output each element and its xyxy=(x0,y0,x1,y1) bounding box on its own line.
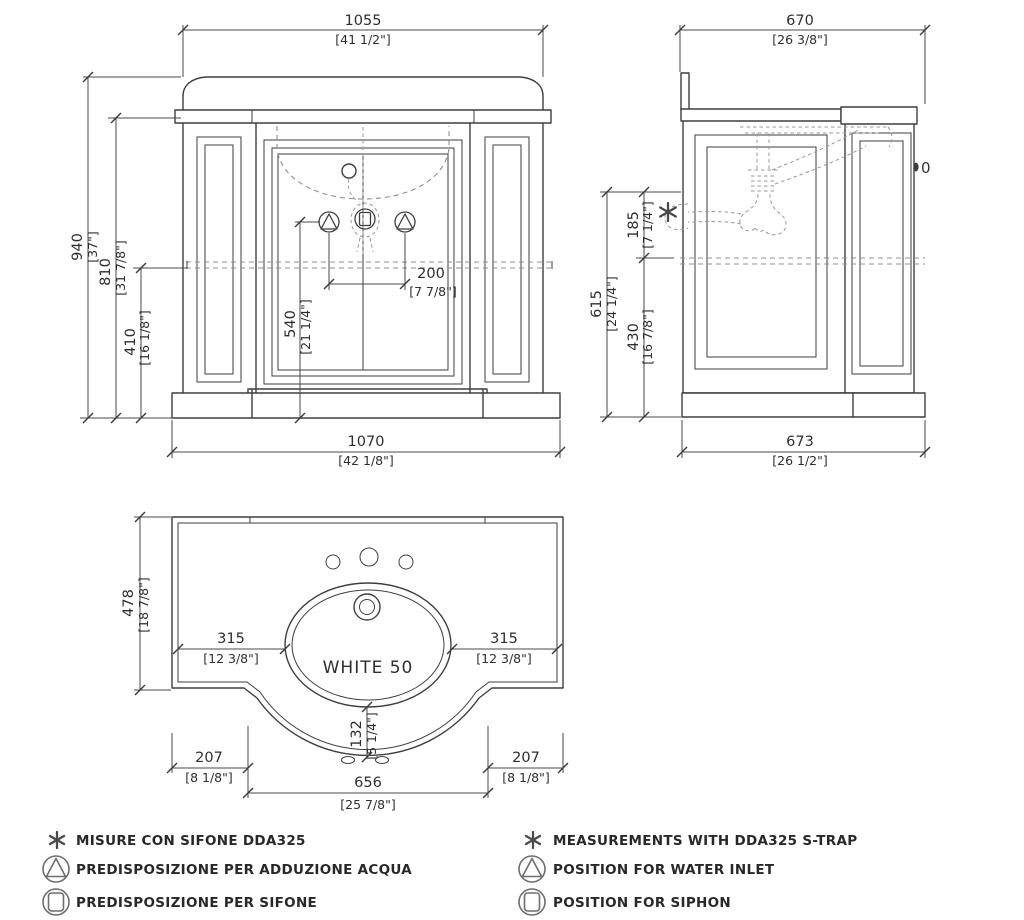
dim-front-wall-height-in: [16 1/8"] xyxy=(137,310,152,366)
asterisk-icon xyxy=(660,203,676,221)
dim-side-top-depth-mm: 670 xyxy=(786,13,814,29)
dim-front-inlet-height-mm: 540 xyxy=(283,310,299,338)
front-countertop xyxy=(175,110,551,123)
siphon-icon xyxy=(355,209,375,229)
water-inlet-icon xyxy=(43,856,69,882)
dim-side-base-depth-in: [26 1/2"] xyxy=(772,453,828,468)
dim-top-left-margin-mm: 207 xyxy=(195,750,223,766)
dim-front-top-width-in: [41 1/2"] xyxy=(335,32,391,47)
legend-item-label: POSITION FOR SIPHON xyxy=(553,895,731,911)
side-countertop xyxy=(681,109,841,121)
side-countertop-front-edge xyxy=(841,107,917,124)
dim-front-counter-height-mm: 810 xyxy=(98,258,114,286)
dim-top-depth-in: [18 7/8"] xyxy=(136,577,151,633)
side-hidden-plumbing xyxy=(665,127,892,235)
water-inlet-icon xyxy=(319,212,339,232)
dim-front-top-width-mm: 1055 xyxy=(345,13,382,29)
dim-front-inlet-spacing-mm: 200 xyxy=(417,266,445,282)
dim-top-basin-width-in: [25 7/8"] xyxy=(340,797,396,812)
dim-top-basin-width-mm: 656 xyxy=(354,775,382,791)
asterisk-icon xyxy=(526,832,540,848)
dim-top-left-margin-in: [8 1/8"] xyxy=(185,770,233,785)
dim-top-left-offset-mm: 315 xyxy=(217,631,245,647)
dim-side-wall-height-in: [16 7/8"] xyxy=(640,309,655,365)
legend-english: MEASUREMENTS WITH DDA325 S-TRAP POSITION… xyxy=(519,832,857,915)
legend-item-label: PREDISPOSIZIONE PER ADDUZIONE ACQUA xyxy=(76,862,412,878)
dim-top-right-margin-mm: 207 xyxy=(512,750,540,766)
siphon-icon xyxy=(519,889,545,915)
dim-front-inlet-spacing-in: [7 7/8"] xyxy=(409,284,457,299)
dim-top-front-offset-in: [5 1/4"] xyxy=(364,712,379,760)
dim-front-inlet-height-in: [21 1/4"] xyxy=(298,299,313,355)
dim-top-front-offset-mm: 132 xyxy=(349,720,365,748)
front-left-panel xyxy=(197,137,241,382)
side-view: 0 xyxy=(589,13,931,468)
side-cabinet-body xyxy=(683,121,914,393)
drawing-canvas: 1055 [41 1/2"] 940 [37"] 810 [31 7/8"] 4… xyxy=(0,0,1024,920)
siphon-icon xyxy=(43,889,69,915)
dim-front-total-height-in: [37"] xyxy=(85,231,100,262)
asterisk-icon xyxy=(50,832,64,848)
dim-side-trap-offset-in: [7 1/4"] xyxy=(640,201,655,249)
side-knob-label: 0 xyxy=(921,159,931,177)
dim-front-base-width-mm: 1070 xyxy=(348,434,385,450)
dim-front-total-height-mm: 940 xyxy=(70,233,86,261)
side-plinth xyxy=(682,393,925,417)
drain-hole-icon xyxy=(342,164,356,178)
front-backsplash xyxy=(183,77,543,112)
legend-italian: MISURE CON SIFONE DDA325 PREDISPOSIZIONE… xyxy=(43,832,412,915)
door-knob-icon xyxy=(913,163,918,172)
side-wall-line xyxy=(680,258,925,264)
water-inlet-icon xyxy=(519,856,545,882)
front-plinth xyxy=(172,389,560,418)
dim-top-right-offset-in: [12 3/8"] xyxy=(476,651,532,666)
dim-side-top-depth-in: [26 3/8"] xyxy=(772,32,828,47)
side-backsplash xyxy=(681,73,689,110)
legend-item-label: MEASUREMENTS WITH DDA325 S-TRAP xyxy=(553,833,857,849)
dim-top-right-offset-mm: 315 xyxy=(490,631,518,647)
front-view: 1055 [41 1/2"] 940 [37"] 810 [31 7/8"] 4… xyxy=(70,13,565,468)
product-label: WHITE 50 xyxy=(323,658,414,678)
dim-side-trap-height-mm: 615 xyxy=(589,290,605,318)
technical-drawing-page: 1055 [41 1/2"] 940 [37"] 810 [31 7/8"] 4… xyxy=(0,0,1024,920)
legend-item-label: POSITION FOR WATER INLET xyxy=(553,862,775,878)
top-slot-left xyxy=(342,757,355,764)
dim-top-right-margin-in: [8 1/8"] xyxy=(502,770,550,785)
water-inlet-icon xyxy=(395,212,415,232)
dim-side-trap-height-in: [24 1/4"] xyxy=(604,276,619,332)
legend-item-label: MISURE CON SIFONE DDA325 xyxy=(76,833,306,849)
side-door-panel xyxy=(852,133,911,374)
front-right-panel xyxy=(485,137,529,382)
dim-front-base-width-in: [42 1/8"] xyxy=(338,453,394,468)
legend-item-label: PREDISPOSIZIONE PER SIFONE xyxy=(76,895,317,911)
dim-side-base-depth-mm: 673 xyxy=(786,434,814,450)
top-view: WHITE 50 478 [18 7/8"] 315 [12 3/8"] 315… xyxy=(121,512,568,812)
dim-top-left-offset-in: [12 3/8"] xyxy=(203,651,259,666)
dim-top-depth-mm: 478 xyxy=(121,589,137,617)
dim-front-counter-height-in: [31 7/8"] xyxy=(113,240,128,296)
